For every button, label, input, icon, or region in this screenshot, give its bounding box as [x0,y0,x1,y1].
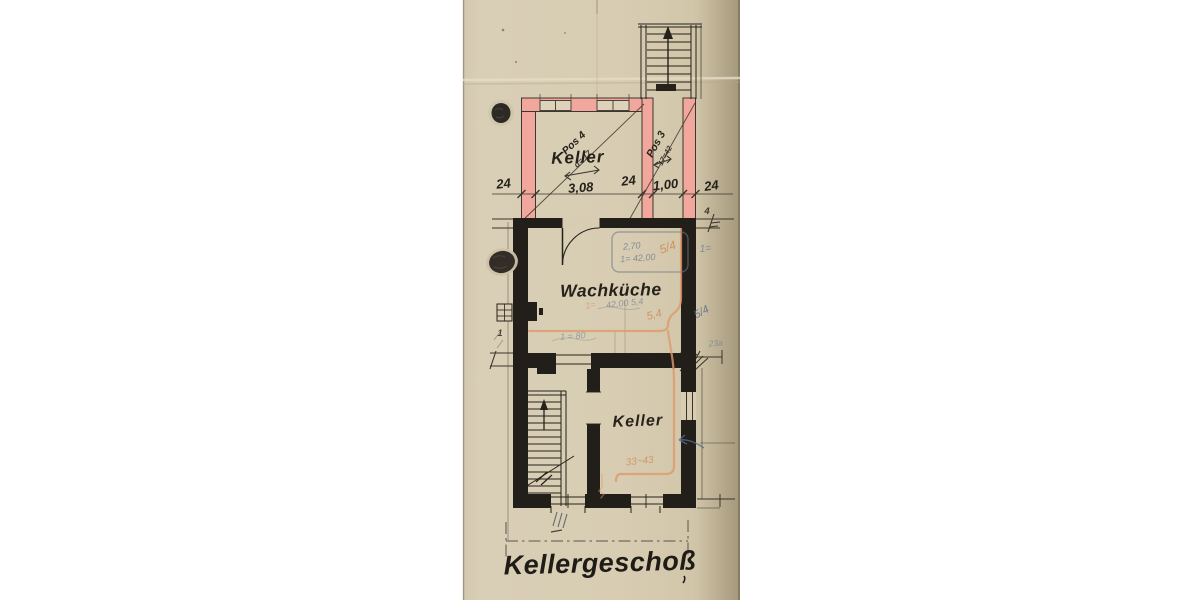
wall-north [513,218,695,228]
floor-plan-photo: Keller Wachküche Keller 24 3,08 24 1,00 … [0,0,1200,600]
floor-plan-drawing: Keller Wachküche Keller 24 3,08 24 1,00 … [0,0,1200,600]
note-mid-c: 1 = 80 [560,330,586,342]
dim-wall-left: 24 [495,175,513,192]
note-right-c: 23a [707,337,723,348]
note-box-a: 2,70 [622,240,641,252]
note-wall-mark: 1 [497,328,502,338]
note-right-a: 1= [699,243,711,255]
dim-wall-right: 24 [702,177,720,194]
note-top-mark: 4 [703,206,710,217]
dim-span-keller: 3,08 [568,179,595,196]
wall-pillar [526,302,537,321]
wall-internal [587,368,600,508]
west-wall-window-symbol [497,304,512,321]
room-label-wash-kitchen: Wachküche [560,279,662,301]
wall-middle [513,353,695,368]
dim-wall-mid: 24 [620,172,638,189]
dim-corridor: 1,00 [652,176,679,194]
note-mid-d: 1= [585,299,597,311]
room-label-lower-keller: Keller [612,412,663,431]
drawing-title-text: Kellergeschoß [503,545,696,580]
wall-south [513,494,695,508]
